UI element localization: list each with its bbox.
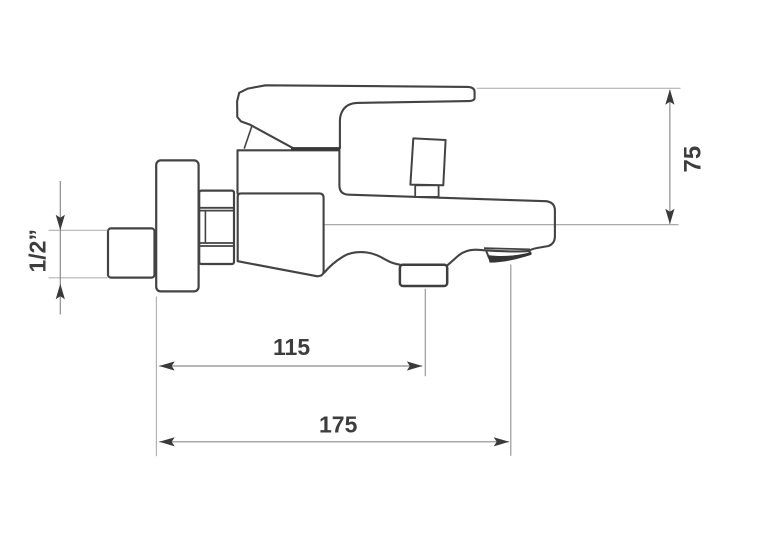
svg-text:75: 75 <box>680 146 707 173</box>
svg-text:175: 175 <box>319 412 358 438</box>
svg-text:1/2”: 1/2” <box>25 229 51 272</box>
svg-text:115: 115 <box>273 334 310 360</box>
